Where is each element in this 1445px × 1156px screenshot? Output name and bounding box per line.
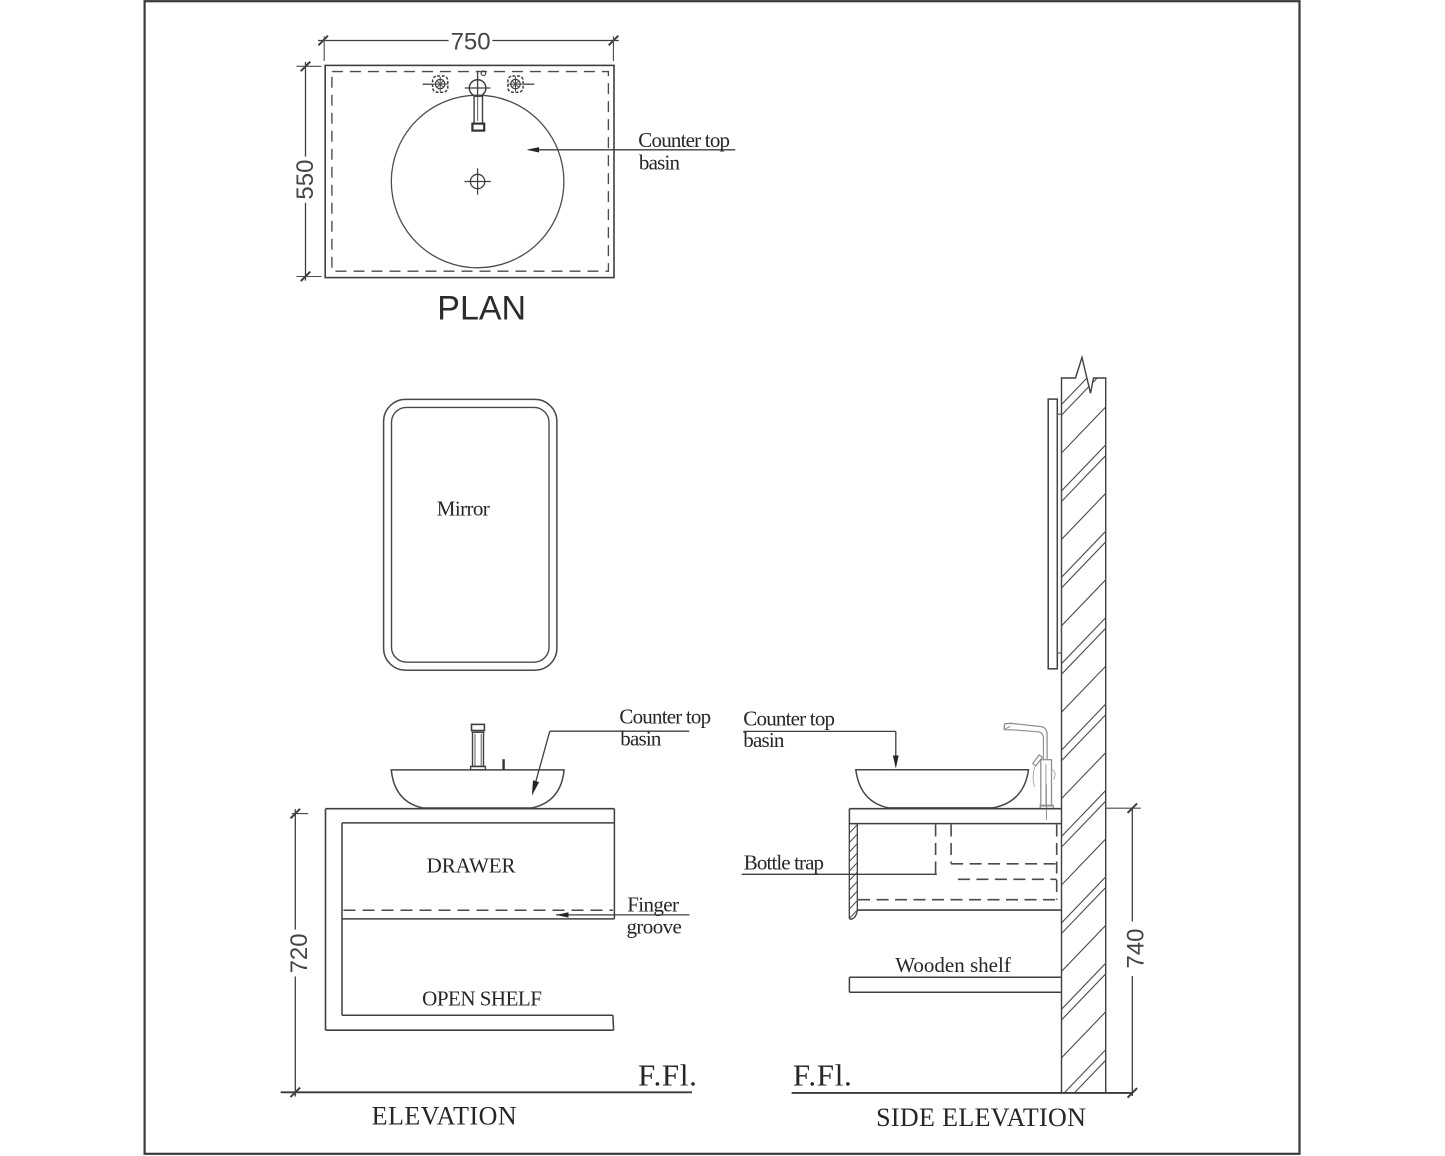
svg-text:F.Fl.: F.Fl. [793,1058,853,1093]
svg-text:740: 740 [1123,928,1150,968]
svg-text:Counter top: Counter top [638,128,729,152]
svg-text:Wooden shelf: Wooden shelf [895,953,1011,977]
svg-text:SIDE ELEVATION: SIDE ELEVATION [876,1103,1086,1132]
svg-text:Bottle trap: Bottle trap [744,850,824,874]
svg-text:PLAN: PLAN [437,290,526,328]
svg-text:Counter top: Counter top [743,706,834,730]
svg-text:550: 550 [292,160,319,200]
svg-text:DRAWER: DRAWER [427,854,516,878]
svg-text:750: 750 [451,28,491,55]
svg-text:Counter top: Counter top [619,705,710,729]
svg-text:Mirror: Mirror [437,497,490,521]
svg-text:720: 720 [286,933,313,973]
svg-text:basin: basin [620,727,662,751]
svg-text:groove: groove [627,914,682,938]
svg-text:basin: basin [639,150,681,174]
svg-text:OPEN SHELF: OPEN SHELF [422,986,541,1010]
svg-text:ELEVATION: ELEVATION [372,1102,518,1131]
svg-text:Finger: Finger [627,893,679,917]
svg-text:F.Fl.: F.Fl. [638,1057,698,1092]
